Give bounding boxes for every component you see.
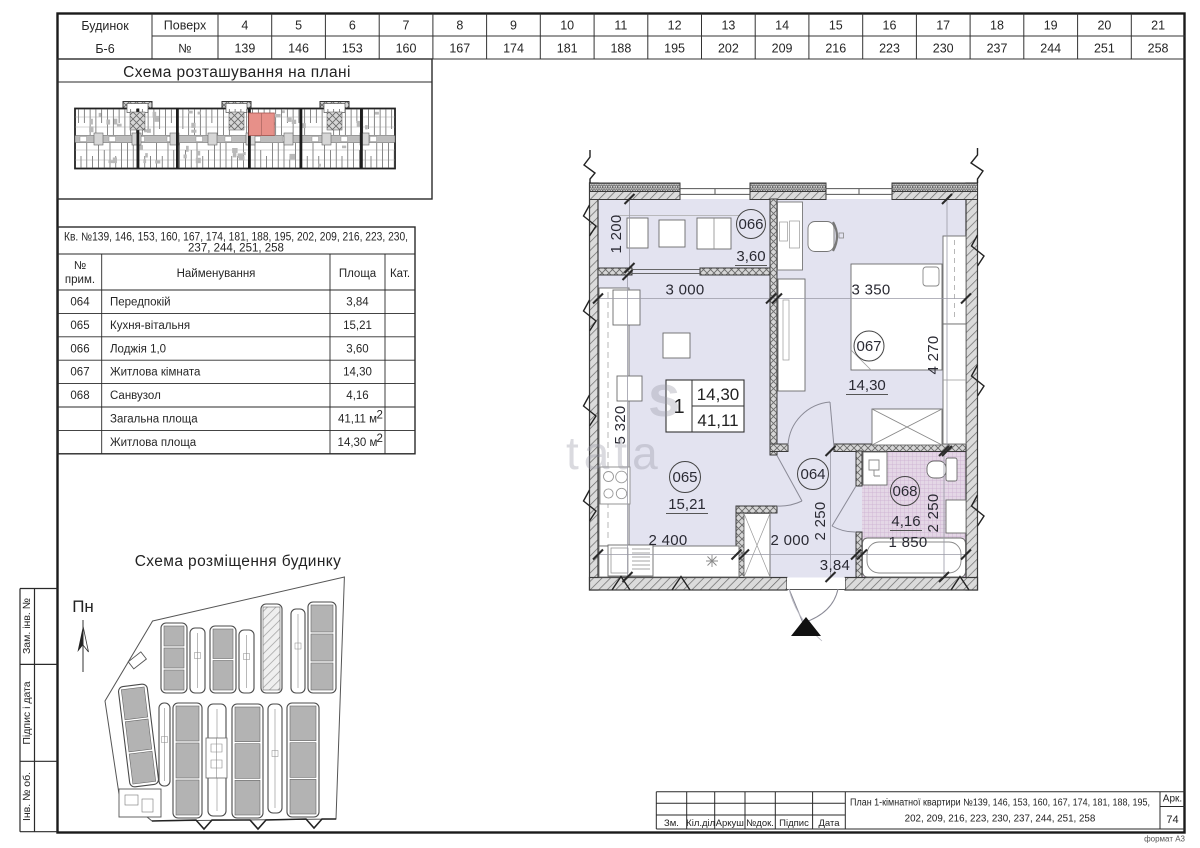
svg-text:18: 18 <box>990 19 1004 33</box>
svg-text:181: 181 <box>557 42 578 56</box>
svg-text:9: 9 <box>510 19 517 33</box>
svg-text:195: 195 <box>664 42 685 56</box>
svg-text:Схема розташування на плані: Схема розташування на плані <box>123 64 351 81</box>
svg-text:Підпис: Підпис <box>779 818 809 829</box>
svg-text:3,60: 3,60 <box>346 343 368 355</box>
svg-text:Аркуш: Аркуш <box>716 818 744 829</box>
svg-text:2: 2 <box>377 410 383 422</box>
svg-text:1 200: 1 200 <box>608 214 625 253</box>
svg-text:2 250: 2 250 <box>925 493 942 532</box>
svg-text:146: 146 <box>288 42 309 56</box>
svg-text:3,60: 3,60 <box>736 248 765 265</box>
svg-text:2: 2 <box>377 433 383 445</box>
svg-text:Дата: Дата <box>818 818 840 829</box>
svg-text:188: 188 <box>610 42 631 56</box>
svg-text:Схема розміщення будинку: Схема розміщення будинку <box>135 553 342 570</box>
svg-text:План 1-кімнатної квартири №139: План 1-кімнатної квартири №139, 146, 153… <box>850 798 1150 809</box>
svg-text:Площа: Площа <box>339 268 377 280</box>
svg-text:251: 251 <box>1094 42 1115 56</box>
svg-text:065: 065 <box>70 320 89 332</box>
svg-text:3 350: 3 350 <box>851 282 890 299</box>
svg-text:17: 17 <box>936 19 950 33</box>
svg-text:Лоджія 1,0: Лоджія 1,0 <box>110 343 166 355</box>
svg-text:Кат.: Кат. <box>390 268 410 280</box>
svg-text:258: 258 <box>1148 42 1169 56</box>
svg-text:15,21: 15,21 <box>343 320 372 332</box>
svg-text:14,30: 14,30 <box>343 367 372 379</box>
svg-text:066: 066 <box>70 343 89 355</box>
svg-text:10: 10 <box>560 19 574 33</box>
svg-text:№: № <box>178 42 191 56</box>
svg-text:№док.: №док. <box>746 818 774 829</box>
svg-text:формат А3: формат А3 <box>1144 835 1185 844</box>
svg-text:16: 16 <box>883 19 897 33</box>
svg-text:Арк.: Арк. <box>1163 794 1182 805</box>
svg-text:12: 12 <box>668 19 682 33</box>
svg-text:153: 153 <box>342 42 363 56</box>
svg-text:4,16: 4,16 <box>891 513 920 530</box>
svg-text:11: 11 <box>614 19 627 33</box>
svg-text:3,84: 3,84 <box>346 297 369 309</box>
svg-text:202: 202 <box>718 42 739 56</box>
svg-text:067: 067 <box>856 338 881 355</box>
svg-text:Кіл.діл: Кіл.діл <box>686 818 715 829</box>
svg-text:Житлова кімната: Житлова кімната <box>110 367 201 379</box>
svg-text:174: 174 <box>503 42 524 56</box>
svg-text:14,30: 14,30 <box>848 377 886 394</box>
svg-text:4: 4 <box>241 19 248 33</box>
svg-text:s: s <box>648 364 680 429</box>
svg-text:139: 139 <box>234 42 255 56</box>
svg-text:167: 167 <box>449 42 470 56</box>
svg-text:Загальна площа: Загальна площа <box>110 414 198 426</box>
svg-text:20: 20 <box>1097 19 1111 33</box>
svg-text:№: № <box>74 260 86 272</box>
svg-text:Будинок: Будинок <box>81 19 129 33</box>
svg-text:6: 6 <box>349 19 356 33</box>
svg-text:230: 230 <box>933 42 954 56</box>
svg-text:Санвузол: Санвузол <box>110 390 161 402</box>
svg-text:7: 7 <box>403 19 410 33</box>
svg-text:Підпис і дата: Підпис і дата <box>21 681 33 744</box>
svg-text:Найменування: Найменування <box>177 268 256 280</box>
svg-text:Інв. № об.: Інв. № об. <box>21 772 33 821</box>
svg-text:14,30 м: 14,30 м <box>338 437 378 449</box>
svg-text:068: 068 <box>70 390 89 402</box>
svg-text:237, 244, 251, 258: 237, 244, 251, 258 <box>188 243 284 255</box>
svg-text:Б-6: Б-6 <box>95 42 114 56</box>
svg-text:Пн: Пн <box>72 597 94 616</box>
svg-text:21: 21 <box>1151 19 1165 33</box>
svg-text:Поверх: Поверх <box>164 19 207 33</box>
svg-text:3 000: 3 000 <box>665 282 704 299</box>
svg-text:2 400: 2 400 <box>648 532 687 549</box>
svg-text:Житлова площа: Житлова площа <box>110 437 197 449</box>
svg-text:5: 5 <box>295 19 302 33</box>
svg-text:2 250: 2 250 <box>812 501 829 540</box>
svg-text:067: 067 <box>70 367 89 379</box>
svg-text:209: 209 <box>772 42 793 56</box>
svg-text:13: 13 <box>721 19 735 33</box>
svg-text:4,16: 4,16 <box>346 390 368 402</box>
svg-text:tata: tata <box>566 427 663 479</box>
svg-text:2 000: 2 000 <box>770 532 809 549</box>
svg-text:066: 066 <box>738 216 763 233</box>
svg-text:237: 237 <box>987 42 1008 56</box>
svg-text:216: 216 <box>825 42 846 56</box>
svg-text:068: 068 <box>892 483 917 500</box>
svg-text:14,30: 14,30 <box>697 385 740 404</box>
svg-text:74: 74 <box>1166 814 1178 826</box>
svg-text:19: 19 <box>1044 19 1058 33</box>
svg-text:202, 209, 216, 223, 230, 237,: 202, 209, 216, 223, 230, 237, 244, 251, … <box>905 814 1096 825</box>
svg-text:41,11 м: 41,11 м <box>338 414 377 426</box>
svg-text:14: 14 <box>775 19 789 33</box>
svg-text:Передпокій: Передпокій <box>110 297 171 309</box>
svg-text:4 270: 4 270 <box>925 335 942 374</box>
svg-text:8: 8 <box>456 19 463 33</box>
svg-text:15: 15 <box>829 19 843 33</box>
svg-text:41,11: 41,11 <box>697 411 738 430</box>
svg-text:064: 064 <box>800 466 825 483</box>
svg-text:160: 160 <box>396 42 417 56</box>
svg-text:223: 223 <box>879 42 900 56</box>
svg-text:064: 064 <box>70 297 90 309</box>
svg-text:Кухня-вітальня: Кухня-вітальня <box>110 320 190 332</box>
svg-text:15,21: 15,21 <box>668 496 706 513</box>
svg-text:3,84: 3,84 <box>820 557 850 574</box>
svg-text:прим.: прим. <box>65 274 95 286</box>
svg-text:1 850: 1 850 <box>888 534 927 551</box>
svg-text:065: 065 <box>672 469 697 486</box>
svg-text:Зам. інв. №: Зам. інв. № <box>21 598 33 654</box>
svg-text:Зм.: Зм. <box>664 818 679 829</box>
svg-text:244: 244 <box>1040 42 1061 56</box>
